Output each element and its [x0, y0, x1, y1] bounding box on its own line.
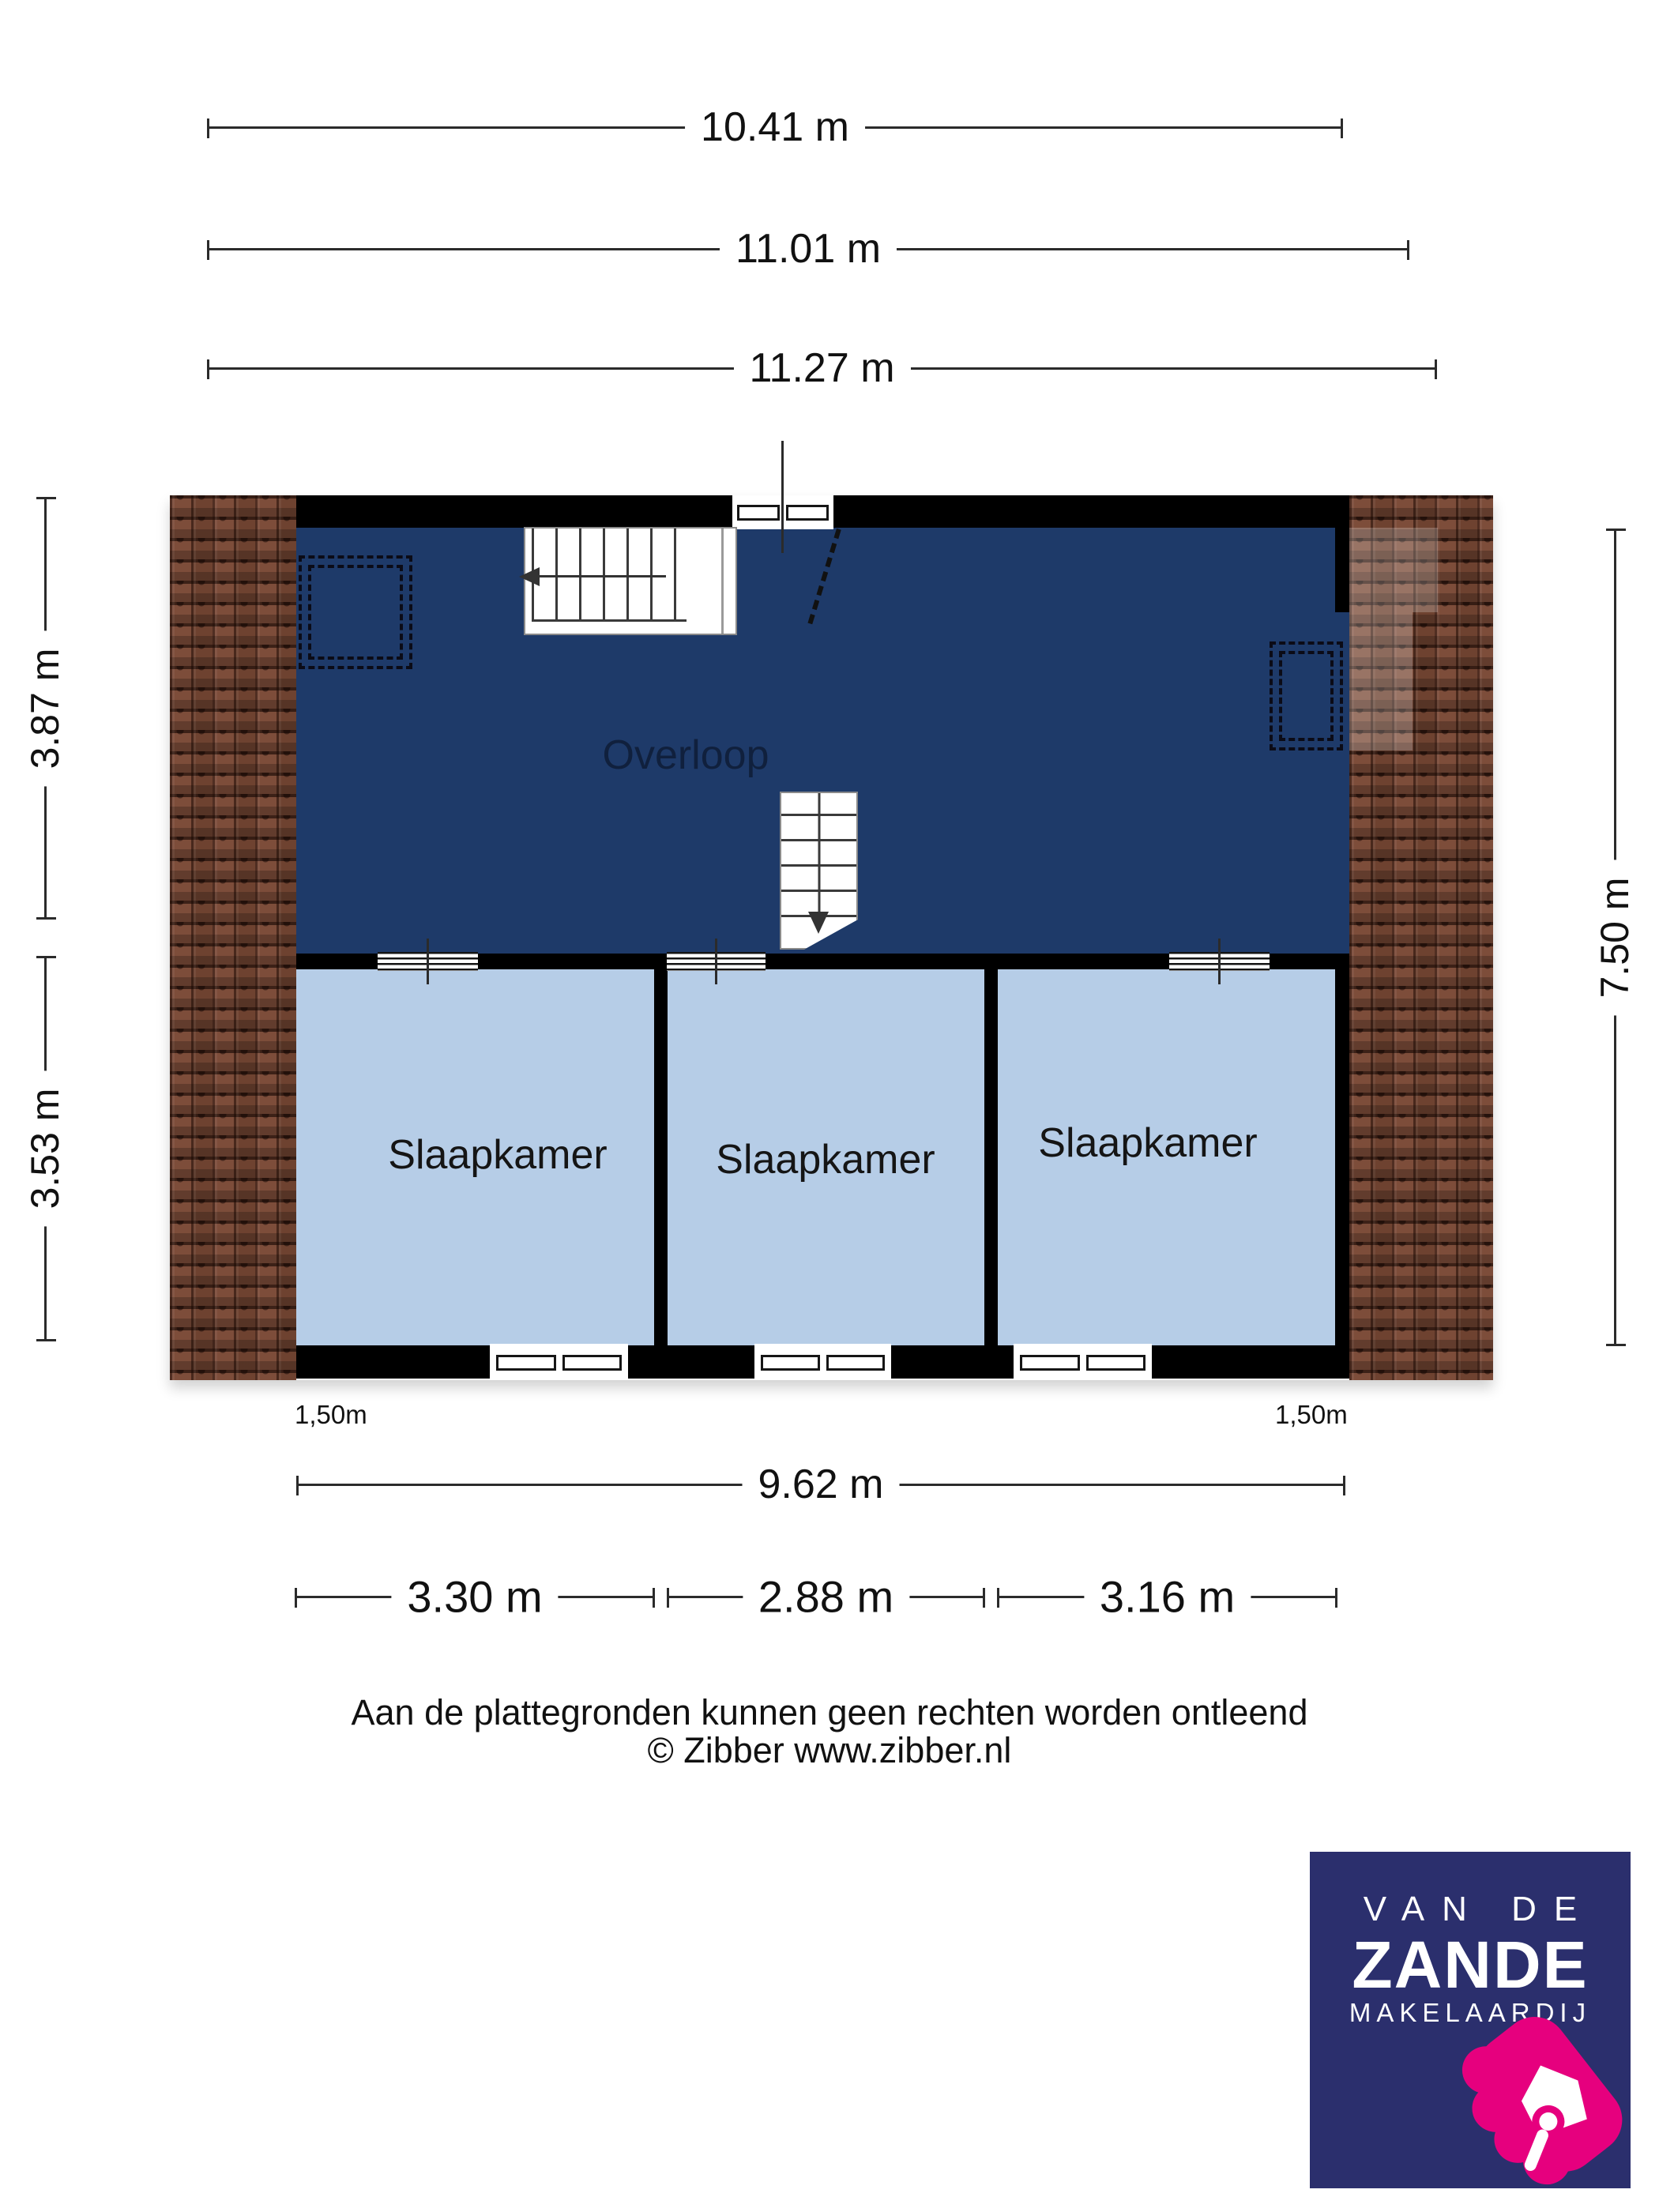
copyright-text: © Zibber www.zibber.nl [0, 1730, 1659, 1771]
dim-tick [1341, 118, 1343, 138]
wall-right-lower [1335, 954, 1349, 1379]
door-marker [715, 939, 717, 984]
bedroom-3-label: Slaapkamer [1038, 1119, 1257, 1167]
staircase-lower [780, 792, 858, 950]
window-bedroom-2 [754, 1344, 891, 1380]
window-center-marker [781, 441, 784, 553]
dormer-outline-inner [1279, 651, 1334, 741]
staircase-center-line [818, 793, 820, 920]
dimension-left-upper: 3.87 m [44, 498, 47, 919]
window-glazing [761, 1355, 885, 1371]
logo-house-magnifier-icon [1454, 1999, 1631, 2188]
window-glazing [496, 1355, 622, 1371]
window-mullion [818, 1355, 829, 1371]
dimension-bedroom-3-width: 3.16 m [998, 1596, 1337, 1598]
dim-tick [997, 1588, 999, 1608]
dimension-left-lower-label: 3.53 m [22, 1071, 68, 1227]
dimension-right: 7.50 m [1614, 529, 1616, 1345]
dim-tick [667, 1588, 669, 1608]
arrow-head [519, 567, 540, 586]
roof-flat-section [1349, 612, 1413, 750]
dim-tick [1335, 1588, 1337, 1608]
dim-tick [1343, 1476, 1345, 1495]
dim-tick [1606, 1344, 1626, 1346]
dimension-left-lower: 3.53 m [44, 957, 47, 1341]
window-mullion [554, 1355, 565, 1371]
dim-tick [1407, 240, 1409, 260]
dim-tick [1606, 529, 1626, 531]
window-mullion [1078, 1355, 1089, 1371]
headroom-label-right: 1,50m [1275, 1400, 1348, 1430]
dim-tick [36, 917, 56, 920]
bedroom-2-label: Slaapkamer [716, 1136, 935, 1183]
dimension-bedroom-1-width-label: 3.30 m [391, 1571, 558, 1623]
window-glazing [1020, 1355, 1145, 1371]
dim-tick [36, 497, 56, 499]
dim-tick [296, 1476, 299, 1495]
dimension-bottom-total: 9.62 m [297, 1484, 1345, 1486]
logo-text-zande: ZANDE [1310, 1927, 1631, 2003]
dimension-right-label: 7.50 m [1592, 860, 1638, 1015]
dim-tick [36, 1339, 56, 1341]
dimension-bedroom-2-width: 2.88 m [668, 1596, 984, 1598]
floorplan-page: 10.41 m 11.01 m 11.27 m 3.87 m 3.53 m 7.… [0, 0, 1659, 2212]
dormer-outline-right [1270, 641, 1343, 750]
disclaimer-text: Aan de plattegronden kunnen geen rechten… [0, 1692, 1659, 1733]
dormer-outline-inner [308, 565, 403, 660]
staircase-direction-arrow [540, 575, 666, 577]
dim-tick [36, 956, 56, 958]
landing-label: Overloop [603, 732, 769, 779]
dimension-bedroom-2-width-label: 2.88 m [743, 1571, 909, 1623]
dimension-bottom-total-label: 9.62 m [743, 1461, 900, 1508]
dim-tick [295, 1588, 297, 1608]
dimension-top-2: 11.01 m [208, 248, 1409, 250]
staircase-landing-edge [721, 529, 724, 634]
dimension-bedroom-1-width: 3.30 m [295, 1596, 654, 1598]
dimension-top-1-label: 10.41 m [685, 103, 865, 151]
roof-tiles-left [170, 495, 296, 1380]
dimension-bedroom-3-width-label: 3.16 m [1084, 1571, 1251, 1623]
logo-text-van-de: VAN DE [1310, 1890, 1631, 1929]
door-marker [1218, 939, 1221, 984]
window-bedroom-3 [1014, 1344, 1152, 1380]
dimension-top-3: 11.27 m [208, 367, 1436, 370]
dimension-left-upper-label: 3.87 m [22, 630, 68, 786]
dim-tick [207, 240, 209, 260]
dimension-top-2-label: 11.01 m [720, 225, 897, 273]
dimension-top-1: 10.41 m [208, 126, 1342, 129]
arrow-head [808, 912, 829, 934]
dim-tick [653, 1588, 655, 1608]
dim-tick [207, 118, 209, 138]
broker-logo: VAN DE ZANDE MAKELAARDIJ [1310, 1852, 1631, 2188]
dim-tick [207, 359, 209, 379]
dimension-top-3-label: 11.27 m [733, 344, 910, 392]
dormer-outline-left [299, 555, 412, 669]
wall-bedroom-divider-2 [984, 954, 998, 1345]
floorplan-drawing: Overloop Slaapkamer Slaapkamer Slaapkame… [170, 495, 1493, 1380]
window-bedroom-1 [490, 1344, 628, 1380]
wall-bedroom-divider-1 [654, 954, 668, 1345]
roof-flat-section [1349, 528, 1438, 612]
wall-right-upper [1335, 495, 1349, 612]
headroom-label-left: 1,50m [295, 1400, 367, 1430]
dim-tick [1435, 359, 1437, 379]
staircase-upper [524, 527, 737, 635]
door-marker [427, 939, 429, 984]
dim-tick [983, 1588, 985, 1608]
bedroom-1-label: Slaapkamer [388, 1131, 607, 1179]
